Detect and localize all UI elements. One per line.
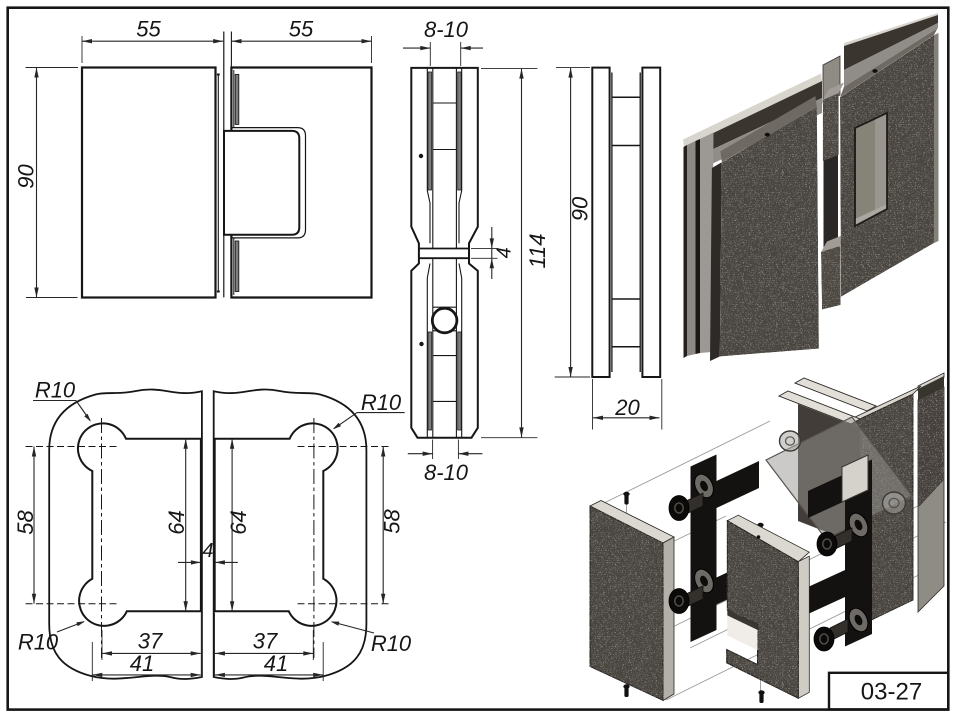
- svg-text:R10: R10: [35, 378, 76, 403]
- svg-text:R10: R10: [18, 630, 59, 655]
- svg-text:90: 90: [568, 196, 593, 221]
- svg-text:114: 114: [525, 233, 550, 268]
- svg-text:37: 37: [138, 629, 163, 654]
- svg-text:90: 90: [14, 164, 39, 189]
- svg-text:58: 58: [13, 510, 38, 535]
- svg-text:41: 41: [264, 651, 288, 676]
- svg-text:41: 41: [130, 651, 154, 676]
- svg-text:4: 4: [202, 540, 213, 562]
- svg-text:03-27: 03-27: [861, 679, 922, 706]
- svg-text:58: 58: [380, 509, 405, 534]
- svg-text:R10: R10: [371, 631, 412, 656]
- svg-text:8-10: 8-10: [424, 460, 469, 485]
- svg-text:64: 64: [226, 510, 251, 534]
- svg-text:8-10: 8-10: [424, 17, 469, 42]
- svg-text:64: 64: [164, 510, 189, 534]
- svg-text:4: 4: [494, 247, 516, 258]
- svg-text:37: 37: [253, 629, 278, 654]
- svg-text:R10: R10: [361, 390, 402, 415]
- svg-text:20: 20: [614, 395, 640, 420]
- svg-text:55: 55: [289, 17, 314, 42]
- svg-text:55: 55: [136, 17, 161, 42]
